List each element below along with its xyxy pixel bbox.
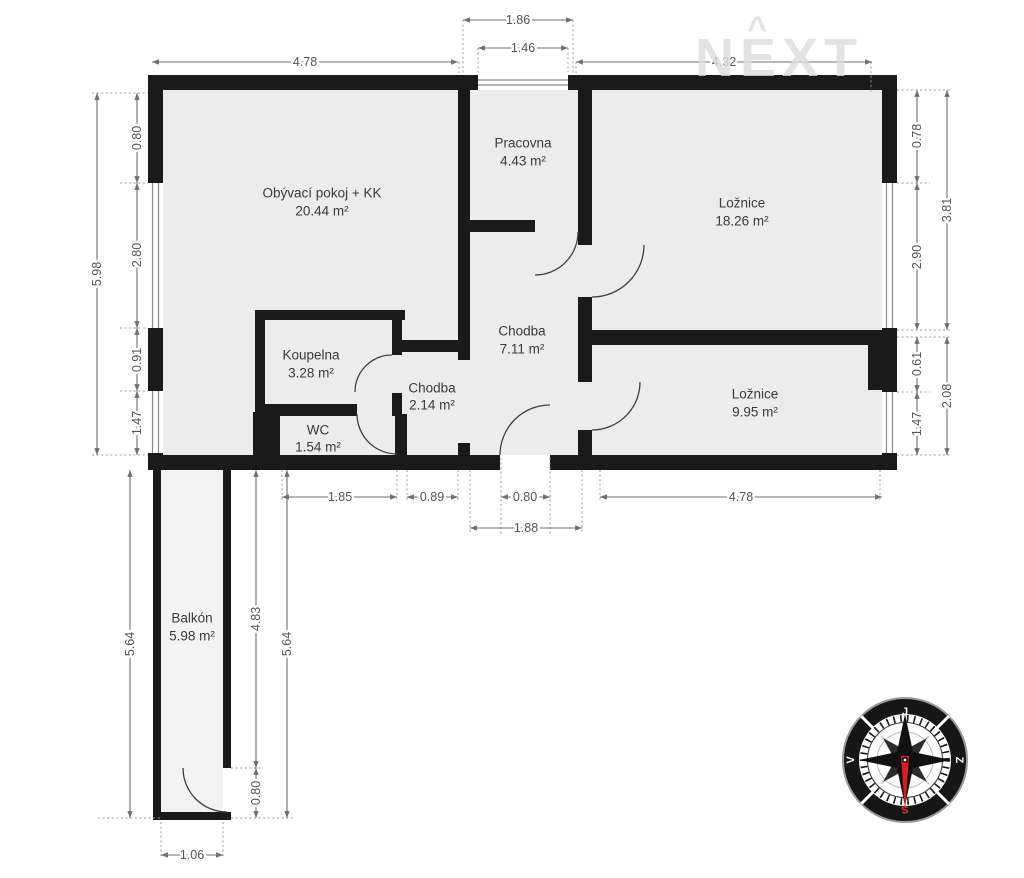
wall-balcony-right bbox=[223, 470, 231, 768]
room-area: 4.43 m² bbox=[500, 154, 546, 169]
floor-plan-page: 1.86 1.46 4.78 4.32 5.98 0.80 2.80 0.91 … bbox=[0, 0, 1024, 878]
dim-balcony-left: 5.64 bbox=[123, 632, 137, 656]
dim-balcony-width: 1.06 bbox=[180, 848, 204, 862]
compass-letter-west: Z bbox=[953, 757, 965, 764]
room-name: Ložnice bbox=[732, 387, 779, 402]
room-name: Chodba bbox=[408, 381, 456, 396]
room-area: 1.54 m² bbox=[295, 440, 341, 455]
dim-right-seg1: 0.78 bbox=[910, 124, 924, 148]
wall-wc-left-block bbox=[253, 412, 280, 455]
wall-bathroom-top bbox=[255, 310, 405, 320]
wall-right-pier-top bbox=[882, 90, 897, 183]
dim-balcony-wall: 4.83 bbox=[249, 607, 263, 631]
dim-left-seg1: 0.80 bbox=[130, 126, 144, 150]
room-area: 2.14 m² bbox=[409, 398, 455, 413]
dim-right-seg3: 0.61 bbox=[910, 352, 924, 376]
window-top-study bbox=[478, 75, 568, 90]
dim-balcony-right: 5.64 bbox=[280, 632, 294, 656]
room-name: Ložnice bbox=[719, 196, 766, 211]
wall-top-left bbox=[148, 75, 478, 90]
dim-bottom-bedroom: 4.78 bbox=[729, 490, 753, 504]
wall-hall-bedroom2-stub bbox=[578, 430, 592, 455]
window-left-living-2 bbox=[148, 391, 163, 453]
floor-plan: 1.86 1.46 4.78 4.32 5.98 0.80 2.80 0.91 … bbox=[0, 0, 1024, 878]
watermark-caret-icon: ^ bbox=[747, 10, 767, 48]
room-name: Chodba bbox=[498, 324, 546, 339]
dim-right-upper-total: 3.81 bbox=[940, 198, 954, 222]
wall-hall2-top bbox=[392, 340, 470, 352]
compass-letter-north: S bbox=[901, 803, 908, 815]
room-name: Obývací pokoj + KK bbox=[263, 186, 382, 201]
compass-letter-south: J bbox=[902, 706, 908, 718]
room-name: WC bbox=[307, 423, 330, 438]
wall-between-bedrooms bbox=[592, 330, 882, 345]
wall-bottom-left bbox=[148, 455, 500, 470]
dim-bottom-hall: 0.89 bbox=[420, 490, 444, 504]
wall-left-pier-mid bbox=[148, 328, 163, 391]
wall-living-hall-stub bbox=[458, 443, 470, 455]
room-area: 20.44 m² bbox=[295, 204, 349, 219]
wall-balcony-bottom bbox=[153, 812, 231, 820]
watermark-text: NEXT bbox=[695, 28, 863, 88]
dim-left-seg2: 2.80 bbox=[130, 243, 144, 267]
compass-letter-east: V bbox=[845, 756, 857, 764]
dim-left-seg3: 0.91 bbox=[130, 348, 144, 372]
wall-hall-bedroom1-top bbox=[578, 90, 592, 245]
wall-study-bottom bbox=[458, 220, 535, 232]
room-area: 3.28 m² bbox=[288, 366, 334, 381]
room-area: 5.98 m² bbox=[169, 629, 215, 644]
dim-bottom-wc: 1.85 bbox=[328, 490, 352, 504]
dim-top-window-inner: 1.46 bbox=[511, 41, 535, 55]
window-right-bedroom1 bbox=[882, 183, 897, 328]
dim-top-left: 4.78 bbox=[293, 55, 317, 69]
room-name: Pracovna bbox=[494, 136, 552, 151]
room-area: 9.95 m² bbox=[732, 405, 778, 420]
wall-bathroom-right-lower bbox=[392, 393, 402, 416]
dim-left-total: 5.98 bbox=[90, 262, 104, 286]
window-right-bedroom2 bbox=[882, 392, 897, 453]
dim-bottom-entry: 1.88 bbox=[514, 521, 538, 535]
room-name: Balkón bbox=[171, 611, 212, 626]
dim-left-seg4: 1.47 bbox=[130, 411, 144, 435]
dim-right-seg4: 1.47 bbox=[910, 412, 924, 436]
next-watermark-logo: NEXT ^ bbox=[695, 10, 863, 88]
wall-left-pier-top bbox=[148, 90, 163, 183]
dim-right-seg2: 2.90 bbox=[910, 245, 924, 269]
wall-wc-right bbox=[395, 414, 407, 455]
room-name: Koupelna bbox=[282, 348, 340, 363]
wall-bottom-right bbox=[550, 455, 897, 470]
dim-bottom-entry-door: 0.80 bbox=[513, 490, 537, 504]
room-area: 7.11 m² bbox=[500, 342, 545, 357]
dim-top-window-outer: 1.86 bbox=[506, 13, 530, 27]
wall-hall-bedroom1-mid bbox=[578, 297, 592, 382]
compass-rose-icon: J Z S V bbox=[843, 698, 967, 822]
dim-balcony-door: 0.80 bbox=[249, 781, 263, 805]
dim-right-lower-total: 2.08 bbox=[940, 384, 954, 408]
room-area: 18.26 m² bbox=[715, 214, 769, 229]
wall-bathroom-left bbox=[255, 310, 265, 414]
window-left-living bbox=[148, 183, 163, 328]
wall-balcony-left bbox=[153, 470, 161, 820]
